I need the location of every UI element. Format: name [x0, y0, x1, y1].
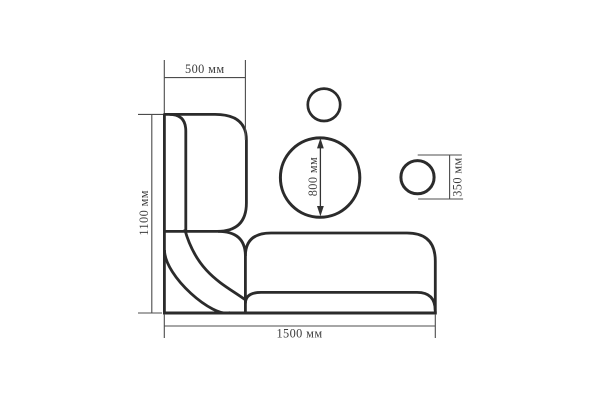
svg-text:500 мм: 500 мм — [185, 62, 224, 76]
svg-text:800 мм: 800 мм — [306, 157, 320, 196]
svg-text:350 мм: 350 мм — [450, 157, 464, 196]
svg-text:1100 мм: 1100 мм — [137, 190, 151, 236]
svg-text:1500 мм: 1500 мм — [276, 327, 322, 341]
